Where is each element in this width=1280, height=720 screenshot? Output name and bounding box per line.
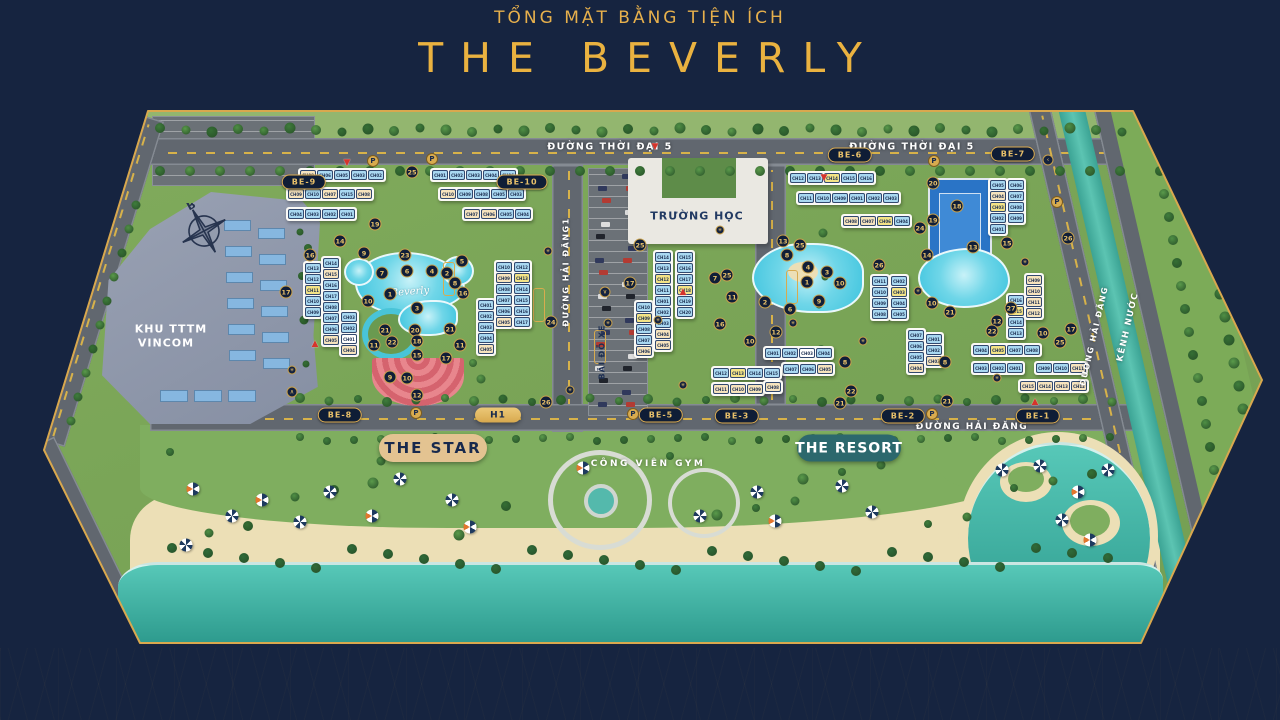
site-plan-map: B CH08CH06CH05CH03CH02CH09CH10CH07CH15CH… <box>0 0 1280 720</box>
tree-icon <box>1201 220 1212 231</box>
amenity-marker-18: 18 <box>411 335 424 348</box>
amenity-marker-12: 12 <box>770 326 783 339</box>
amenity-marker-9: 9 <box>384 371 397 384</box>
amenity-marker-12: 12 <box>411 389 424 402</box>
utility-icon: ✳ <box>566 386 575 395</box>
parking-marker: P <box>367 155 379 167</box>
entrance-arrow-icon: ▲ <box>1032 397 1039 407</box>
amenity-marker-11: 11 <box>454 339 467 352</box>
chevron-icon: ∧ <box>287 387 298 398</box>
tree-icon <box>1206 243 1217 254</box>
amenity-marker-8: 8 <box>939 356 952 369</box>
amenity-marker-10: 10 <box>834 277 847 290</box>
poster-title: THE BEVERLY <box>0 34 1280 82</box>
amenity-marker-6: 6 <box>401 265 414 278</box>
tree-icon <box>1234 603 1244 613</box>
amenity-marker-19: 19 <box>927 214 940 227</box>
tree-icon <box>1230 580 1240 590</box>
tree-icon <box>1183 128 1194 139</box>
parking-marker: P <box>426 153 438 165</box>
amenity-marker-23: 23 <box>399 249 412 262</box>
amenity-marker-10: 10 <box>744 335 757 348</box>
amenity-marker-10: 10 <box>362 295 375 308</box>
utility-icon: ✳ <box>544 247 553 256</box>
amenity-marker-4: 4 <box>802 261 815 274</box>
amenity-marker-21: 21 <box>944 306 957 319</box>
amenity-marker-26: 26 <box>1062 232 1075 245</box>
amenity-marker-26: 26 <box>873 259 886 272</box>
utility-icon: ✳ <box>993 374 1002 383</box>
art-deco-pattern <box>0 648 1280 720</box>
entrance-arrow-icon: ▼ <box>821 173 828 183</box>
amenity-marker-21: 21 <box>941 395 954 408</box>
markers-layer: 2519141692357642811610317212021182211111… <box>0 0 1280 720</box>
tree-icon <box>1210 266 1221 277</box>
tree-icon <box>1238 626 1248 636</box>
amenity-marker-16: 16 <box>304 249 317 262</box>
utility-icon: ✳ <box>1021 258 1030 267</box>
amenity-marker-25: 25 <box>721 269 734 282</box>
parking-marker: P <box>627 408 639 420</box>
chevron-icon: ‹ <box>1043 155 1054 166</box>
amenity-marker-20: 20 <box>927 177 940 190</box>
tree-icon <box>1213 488 1223 498</box>
amenity-marker-3: 3 <box>821 266 834 279</box>
chevron-icon: ∨ <box>600 287 611 298</box>
poster-subtitle: TỔNG MẶT BẰNG TIỆN ÍCH <box>0 8 1280 28</box>
amenity-marker-24: 24 <box>914 222 927 235</box>
amenity-marker-27: 27 <box>1005 302 1018 315</box>
amenity-marker-10: 10 <box>926 297 939 310</box>
tree-icon <box>1222 534 1232 544</box>
tree-icon <box>1147 120 1157 130</box>
tree-icon <box>1242 427 1253 438</box>
amenity-marker-25: 25 <box>794 239 807 252</box>
amenity-marker-14: 14 <box>921 249 934 262</box>
amenity-marker-4: 4 <box>426 265 439 278</box>
utility-icon: ✳ <box>654 316 663 325</box>
amenity-marker-2: 2 <box>759 296 772 309</box>
utility-icon: ✳ <box>716 226 725 235</box>
parking-marker: P <box>928 155 940 167</box>
tree-icon <box>1151 143 1161 153</box>
utility-icon: ✳ <box>789 319 798 328</box>
parking-marker: P <box>1051 196 1063 208</box>
amenity-marker-13: 13 <box>967 241 980 254</box>
tree-icon <box>1247 450 1258 461</box>
tree-icon <box>1256 496 1267 507</box>
tree-icon <box>1196 197 1207 208</box>
amenity-marker-16: 16 <box>714 318 727 331</box>
amenity-marker-11: 11 <box>726 291 739 304</box>
tree-icon <box>1187 151 1198 162</box>
amenity-marker-14: 14 <box>334 235 347 248</box>
amenity-marker-1: 1 <box>801 276 814 289</box>
amenity-marker-18: 18 <box>951 200 964 213</box>
amenity-marker-17: 17 <box>280 286 293 299</box>
tree-icon <box>1275 588 1280 599</box>
entrance-arrow-icon: ▲ <box>312 339 319 349</box>
tree-icon <box>1270 565 1280 576</box>
amenity-marker-8: 8 <box>781 249 794 262</box>
amenity-marker-1: 1 <box>384 288 397 301</box>
utility-icon: ✳ <box>859 337 868 346</box>
amenity-marker-15: 15 <box>1001 237 1014 250</box>
tree-icon <box>1217 511 1227 521</box>
amenity-marker-5: 5 <box>456 255 469 268</box>
amenity-marker-19: 19 <box>369 218 382 231</box>
tree-icon <box>1226 557 1236 567</box>
amenity-marker-6: 6 <box>784 303 797 316</box>
amenity-marker-21: 21 <box>444 323 457 336</box>
tree-icon <box>1192 174 1203 185</box>
amenity-marker-7: 7 <box>376 267 389 280</box>
amenity-marker-26: 26 <box>540 396 553 409</box>
entrance-arrow-icon: ▼ <box>652 142 659 152</box>
amenity-marker-22: 22 <box>386 336 399 349</box>
amenity-marker-9: 9 <box>813 295 826 308</box>
tree-icon <box>1252 473 1263 484</box>
parking-marker: P <box>926 408 938 420</box>
amenity-marker-22: 22 <box>986 325 999 338</box>
amenity-marker-25: 25 <box>406 166 419 179</box>
entrance-arrow-icon: ▲ <box>680 287 687 297</box>
amenity-marker-10: 10 <box>401 372 414 385</box>
tree-icon <box>1265 542 1276 553</box>
amenity-marker-17: 17 <box>624 277 637 290</box>
amenity-marker-11: 11 <box>368 339 381 352</box>
amenity-marker-3: 3 <box>411 302 424 315</box>
utility-icon: ✳ <box>914 287 923 296</box>
amenity-marker-22: 22 <box>845 385 858 398</box>
amenity-marker-8: 8 <box>839 356 852 369</box>
header: TỔNG MẶT BẰNG TIỆN ÍCH THE BEVERLY <box>0 8 1280 82</box>
amenity-marker-24: 24 <box>545 316 558 329</box>
amenity-marker-9: 9 <box>358 247 371 260</box>
amenity-marker-21: 21 <box>834 397 847 410</box>
masterplan-poster: TỔNG MẶT BẰNG TIỆN ÍCH THE BEVERLY <box>0 0 1280 720</box>
amenity-marker-13: 13 <box>777 235 790 248</box>
amenity-marker-21: 21 <box>379 324 392 337</box>
tree-icon <box>1261 519 1272 530</box>
amenity-marker-25: 25 <box>1054 336 1067 349</box>
utility-icon: ✳ <box>604 319 613 328</box>
amenity-marker-16: 16 <box>457 287 470 300</box>
amenity-marker-25: 25 <box>634 239 647 252</box>
parking-marker: P <box>410 407 422 419</box>
utility-icon: ✳ <box>288 366 297 375</box>
amenity-marker-17: 17 <box>440 352 453 365</box>
entrance-arrow-icon: ▼ <box>344 158 351 168</box>
amenity-marker-17: 17 <box>1065 323 1078 336</box>
amenity-marker-15: 15 <box>411 349 424 362</box>
utility-icon: ✳ <box>679 381 688 390</box>
amenity-marker-10: 10 <box>1037 327 1050 340</box>
